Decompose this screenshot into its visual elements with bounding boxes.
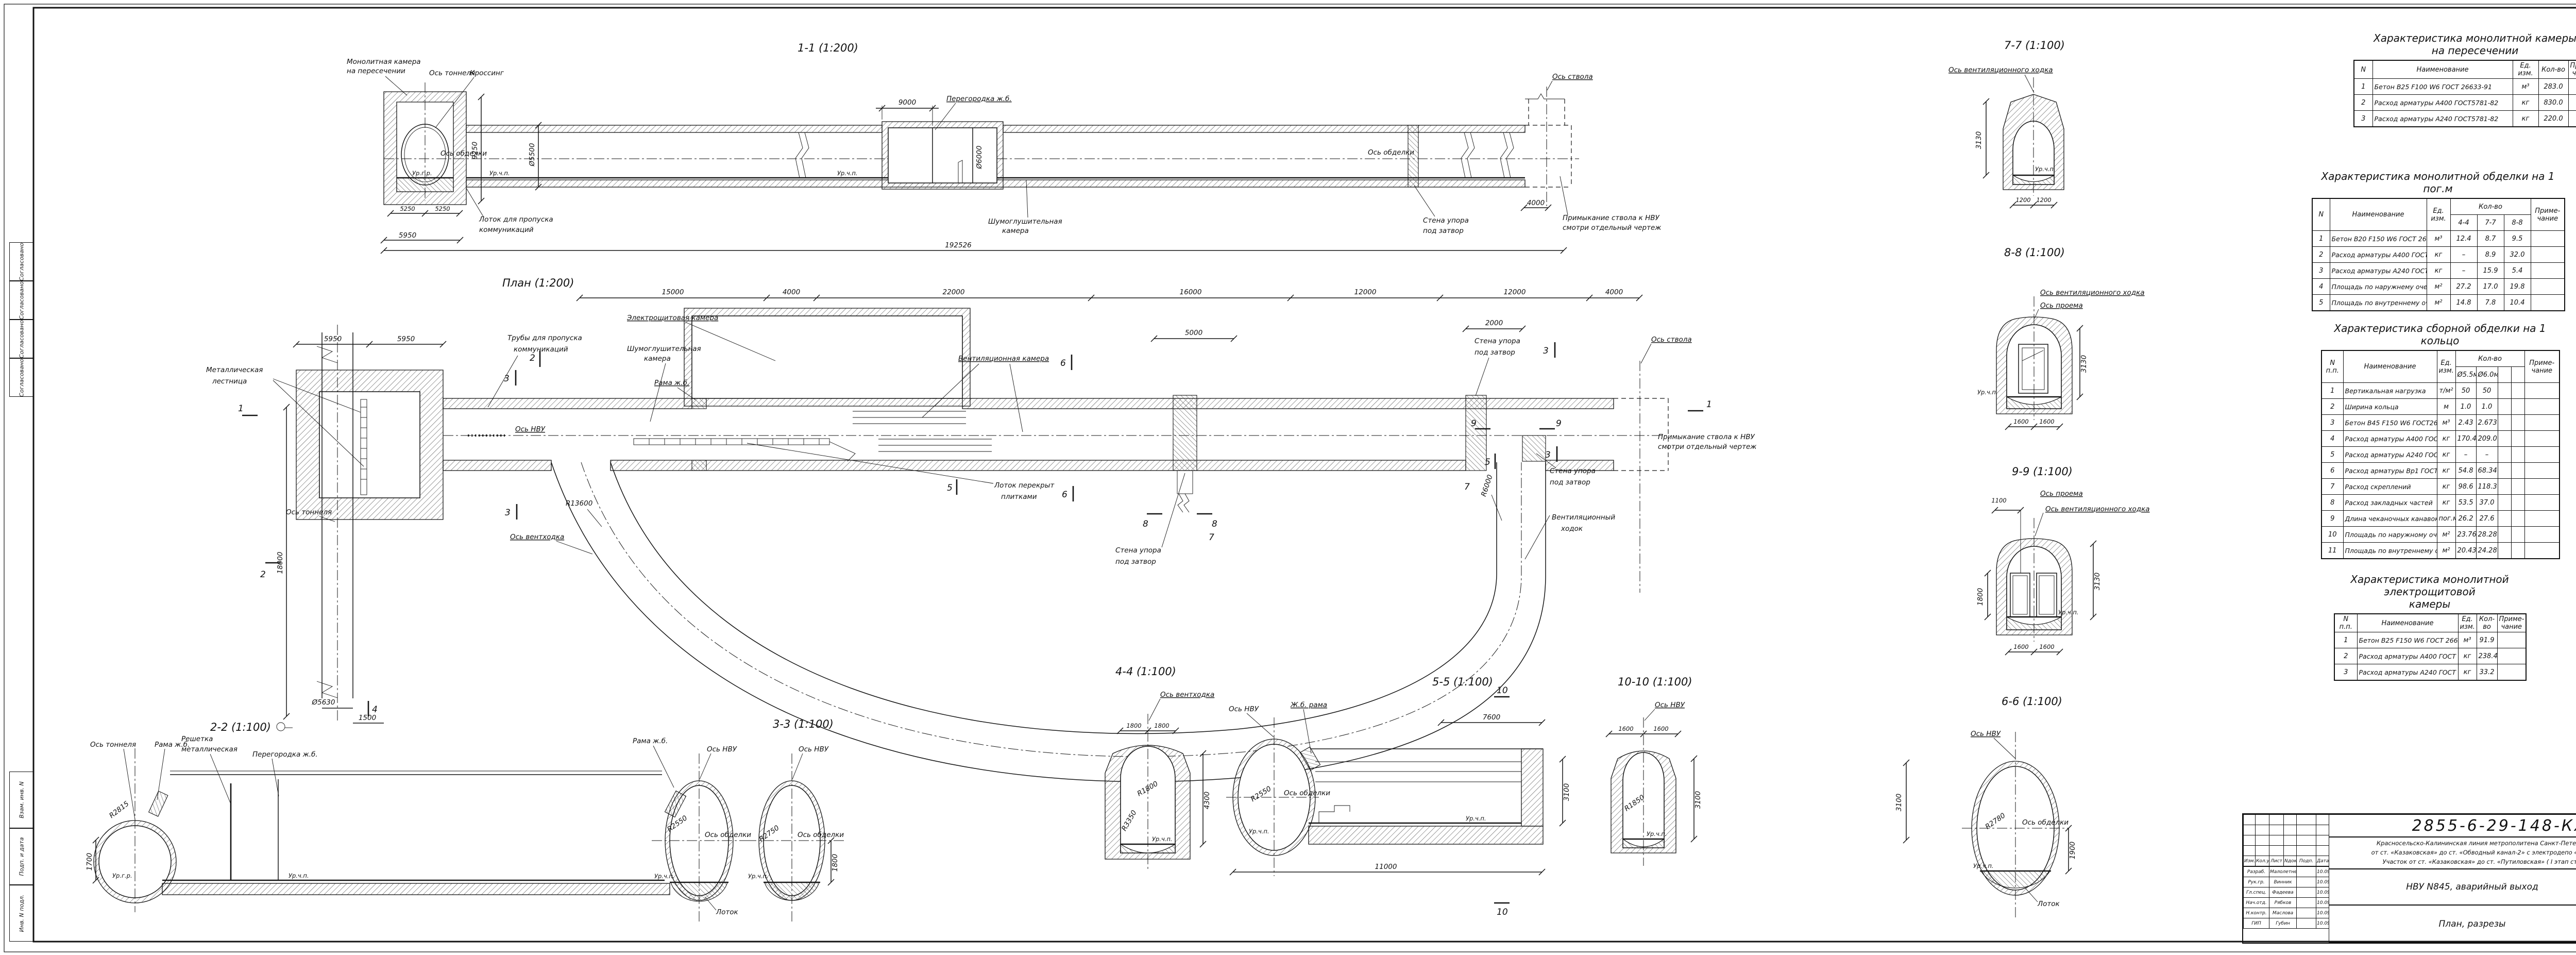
table-cell: 28.28 (2476, 527, 2498, 543)
table-cell: Вертикальная нагрузка (2343, 383, 2437, 399)
dim: 1200 (2036, 196, 2051, 204)
table-cell (2497, 664, 2526, 681)
table-cell (2511, 511, 2524, 527)
section-title: 9-9 (1:100) (2012, 465, 2073, 478)
table-cell: 4 (2312, 279, 2330, 295)
dim: 22000 (943, 288, 965, 296)
label-axis-lining: Ось обделки (1284, 789, 1330, 797)
table-cell (2498, 431, 2511, 447)
label-axis-tunnel: Ось тоннеля (429, 69, 475, 77)
dim: 16000 (1180, 288, 1202, 296)
label-urgr: Ур.г.р. (112, 872, 132, 879)
label-axis-nvu: Ось НВУ (799, 745, 829, 753)
table-cell: Рябков (2269, 898, 2297, 908)
table-cell: 1.0 (2476, 399, 2498, 415)
table-cell: 7 (2321, 479, 2343, 495)
drawing-sheet: 1-1 (1:200) Монолитная камера на пересеч… (0, 0, 2576, 955)
table-cell: 10.09.13 (2316, 898, 2329, 908)
label-partition: Перегородка ж.б. (946, 95, 1012, 103)
table-cell: Расход арматуры А400 ГОСТ 5781-82 (2357, 648, 2458, 664)
dim-3130: 3130 (2080, 355, 2088, 373)
dim-3100: 3100 (1694, 791, 1702, 809)
dim: 15000 (662, 288, 684, 296)
label-axis-vent: Ось вентиляционного ходка (1948, 66, 2053, 74)
table-cell: м³ (2458, 632, 2477, 648)
table-cell: кг (2437, 431, 2455, 447)
table-cell: м³ (2427, 231, 2450, 247)
table-cell: Ширина кольца (2343, 399, 2437, 415)
table-cell: Бетон В45 F150 W6 ГОСТ26633-91 (2343, 415, 2437, 431)
dim-1800: 1800 (831, 854, 839, 872)
table-cell: 5 (2312, 295, 2330, 311)
table-cell: м² (2437, 543, 2455, 559)
table-cell: Бетон В25 F150 W6 ГОСТ 26633-91 (2357, 632, 2458, 648)
table-cell: Бетон В20 F150 W6 ГОСТ 26633-91 (2330, 231, 2427, 247)
label-noise-chamber: камера (1002, 227, 1029, 235)
table-cell: 50 (2476, 383, 2498, 399)
dim-9250: 9250 (471, 142, 479, 159)
stamp-label: Инв. N подл. (18, 895, 25, 932)
table-cell: 12.4 (2450, 231, 2477, 247)
table-ring-lining: Характеристика сборной обделки на 1 коль… (2321, 322, 2559, 559)
table-cell: – (2450, 263, 2477, 279)
mark-5: 5 (1485, 457, 1490, 467)
table-row: Н.контр.Маслова10.09.13 (2244, 908, 2329, 918)
table-row: 1Бетон В20 F150 W6 ГОСТ 26633-91м³12.48.… (2312, 231, 2565, 247)
label-stop-wall: под затвор (1550, 478, 1590, 487)
table-cell (2568, 111, 2576, 127)
dim-1800: 1800 (1976, 588, 1985, 606)
table-cell: 17.0 (2477, 279, 2504, 295)
margin-stamp: Подп. и дата (9, 828, 33, 885)
table-cell (2524, 479, 2560, 495)
label-urchp: Ур.ч.п. (2035, 165, 2056, 173)
table-cell: Бетон В25 F100 W6 ГОСТ 26633-91 (2372, 79, 2513, 95)
table-cell: Расход арматуры А240 ГОСТ 5781-82 (2343, 447, 2437, 463)
mark-7: 7 (1464, 482, 1470, 492)
table-cell (2524, 415, 2560, 431)
mark-7: 7 (1209, 532, 1214, 543)
table-cell (2524, 543, 2560, 559)
table-cell: Винник (2269, 877, 2297, 887)
mark-1: 1 (238, 404, 244, 414)
table-cell: 19.8 (2504, 279, 2531, 295)
col-subheader (2498, 367, 2511, 383)
plan-title: План (1:200) (502, 277, 574, 289)
table-cell (2498, 511, 2511, 527)
table-row: Разраб.Малолетнева10.09.13 (2244, 867, 2329, 877)
label-rama: Рама ж.б. (633, 737, 668, 745)
table-cell: Губин (2269, 918, 2297, 929)
label-stop-wall: Стена упора (1475, 337, 1520, 345)
dim: 1600 (2013, 418, 2028, 425)
table-cell: 1.0 (2455, 399, 2476, 415)
label-lotok: Лоток (716, 908, 739, 916)
dim-1500: 1500 (359, 714, 376, 722)
table-cell (2498, 495, 2511, 511)
dim-2000: 2000 (1485, 319, 1503, 327)
label-axis-nvu: Ось НВУ (1229, 705, 1259, 713)
tb-col: Подп. (2297, 856, 2316, 866)
mark-10: 10 (1497, 907, 1508, 917)
table-cell: 3 (2354, 111, 2372, 127)
table-row: 1Вертикальная нагрузкат/м²5050 (2321, 383, 2560, 399)
mark-2: 2 (530, 353, 535, 363)
table-row: 9Длина чеканочных канавокпог.м26.227.6 (2321, 511, 2560, 527)
dim-5950: 5950 (399, 231, 416, 240)
col-subheader (2511, 367, 2524, 383)
table-cell: Расход арматуры А240 ГОСТ 5781-82 (2357, 664, 2458, 681)
table-cell: – (2450, 247, 2477, 263)
dim-3130: 3130 (1975, 131, 1983, 149)
table-cell: 32.0 (2504, 247, 2531, 263)
table-cell: Разраб. (2244, 867, 2269, 877)
section-title: 5-5 (1:100) (1432, 676, 1493, 688)
stamp-label: Согласовано (18, 243, 25, 281)
table-cell (2568, 79, 2576, 95)
table-cell: 91.9 (2477, 632, 2497, 648)
dim: 4000 (1605, 288, 1623, 296)
mark-8: 8 (1143, 519, 1148, 529)
table-cell: Расход скреплений (2343, 479, 2437, 495)
table-cell (2524, 511, 2560, 527)
label-elec-chamber: Электрощитовая камера (626, 314, 718, 322)
label-lotok-comm: Лоток для пропуска (479, 215, 553, 224)
table-cell: кг (2437, 463, 2455, 479)
stamp-label: Согласовано (18, 359, 25, 397)
label-stop-wall: Стена упора (1423, 216, 1469, 225)
table-cell: 220.0 (2538, 111, 2568, 127)
label-axis-tunnel: Ось тоннеля (90, 741, 136, 749)
label-urchp: Ур.ч.п. (1249, 828, 1269, 835)
table-cell: м³ (2513, 79, 2538, 95)
mark-3: 3 (505, 508, 511, 518)
label-urchp: Ур.ч.п. (289, 872, 309, 879)
table-cell: кг (2513, 95, 2538, 111)
table-cell: 50 (2455, 383, 2476, 399)
margin-stamp: Согласовано (9, 358, 33, 397)
table-cell: 68.34 (2476, 463, 2498, 479)
col-subheader: 7-7 (2477, 215, 2504, 231)
table-cell: 98.6 (2455, 479, 2476, 495)
table-cell: кг (2437, 447, 2455, 463)
table-cell: 54.8 (2455, 463, 2476, 479)
margin-stamp: Инв. N подл. (9, 885, 33, 942)
table-cell: 10.09.13 (2316, 918, 2329, 929)
table-cell: 209.0 (2476, 431, 2498, 447)
label-axis-tunnel: Ось тоннеля (286, 508, 332, 516)
dim-5630: Ø5630 (312, 698, 335, 707)
dim-5000: 5000 (1185, 329, 1202, 337)
table-cell: 8 (2321, 495, 2343, 511)
table-cell (2498, 383, 2511, 399)
dim: 12000 (1354, 288, 1377, 296)
dim: 1600 (1618, 725, 1633, 732)
table-cell (2498, 543, 2511, 559)
table-cell (2498, 527, 2511, 543)
table-cell: 1 (2321, 383, 2343, 399)
table-cell: 9 (2321, 511, 2343, 527)
mark-2: 2 (260, 569, 266, 580)
label-stop-wall: под затвор (1423, 227, 1464, 235)
dim: 12000 (1504, 288, 1526, 296)
label-noise-chamber: Шумоглушительная (988, 217, 1062, 226)
table-row: 2Ширина кольцам1.01.0 (2321, 399, 2560, 415)
table-cell: 10 (2321, 527, 2343, 543)
table-cell: м³ (2437, 415, 2455, 431)
table-cell (2511, 447, 2524, 463)
col-header: N (2354, 60, 2372, 79)
table-cell: Расход арматуры А240 ГОСТ5781-82 (2372, 111, 2513, 127)
table-cell: Расход арматуры А400 ГОСТ 5781-82 (2330, 247, 2427, 263)
table-row: 1Бетон В25 F100 W6 ГОСТ 26633-91м³283.0 (2354, 79, 2576, 95)
table-cell: м² (2427, 295, 2450, 311)
table-cell: 23.76 (2455, 527, 2476, 543)
table-cell: 2 (2354, 95, 2372, 111)
col-header: Кол-во (2450, 198, 2531, 215)
dim-r13600: R13600 (566, 499, 592, 508)
col-header: Ед. изм. (2427, 198, 2450, 231)
table-electro-chamber: Характеристика монолитной электрощитовой… (2334, 573, 2526, 681)
label-zhb-rama: Ж.б. рама (1290, 701, 1327, 709)
label-urchp: Ур.ч.п. (1152, 835, 1173, 843)
table-cell (2498, 415, 2511, 431)
section-1-1-title: 1-1 (1:200) (798, 42, 858, 54)
label-urchp: Ур.ч.п. (837, 170, 858, 177)
table-cell: Расход закладных частей (2343, 495, 2437, 511)
table-cell: 2.673 (2476, 415, 2498, 431)
mark-6: 6 (1062, 490, 1067, 500)
table-cell: 53.5 (2455, 495, 2476, 511)
margin-stamp: Согласовано (9, 281, 33, 320)
table-cell: кг (2458, 664, 2477, 681)
mark-1: 1 (1706, 399, 1712, 410)
table-row: 11Площадь по внутреннему очертаниюм²20.4… (2321, 543, 2560, 559)
table-cell (2497, 648, 2526, 664)
stamp-label: Взам. инв. N (18, 781, 25, 818)
table-cell (2524, 495, 2560, 511)
dim: 1200 (2015, 196, 2030, 204)
dim-3100: 3100 (1895, 794, 1903, 811)
desc-line: Красносельско-Калининская линия метропол… (2377, 839, 2576, 848)
label-urchp: Ур.ч.п. (1973, 862, 1994, 869)
tb-col: Nдок. (2284, 856, 2297, 866)
table-cell (2498, 463, 2511, 479)
dim-9000: 9000 (899, 98, 916, 107)
col-header: N п.п. (2334, 614, 2357, 632)
table-cell: 1 (2354, 79, 2372, 95)
table-cell: 37.0 (2476, 495, 2498, 511)
label-adjoin: Примыкание ствола к НВУ (1658, 433, 1755, 441)
table-cell (2297, 867, 2316, 877)
label-axis-nvu: Ось НВУ (707, 745, 737, 753)
col-subheader: Ø5.5м (2455, 367, 2476, 383)
label-urchp: Ур.ч.п. (1466, 815, 1486, 822)
table-cell: 9.5 (2504, 231, 2531, 247)
dim: 1800 (1154, 722, 1169, 729)
col-header: Приме- чание (2497, 614, 2526, 632)
col-header: Приме- чание (2524, 350, 2560, 383)
table-cell: 20.43 (2455, 543, 2476, 559)
label-chamber: Монолитная камера (347, 58, 421, 66)
section-title: 2-2 (1:100) (210, 721, 271, 733)
table-cell: 3 (2312, 263, 2330, 279)
table-cell: пог.м (2437, 511, 2455, 527)
table-cell: 7.8 (2477, 295, 2504, 311)
col-header: Кол-во (2455, 350, 2524, 367)
dim-5500: Ø5500 (528, 143, 536, 167)
table-cell (2531, 295, 2565, 311)
table-cell: Площадь по внутреннему очертанию (2330, 295, 2427, 311)
col-header: Приме- чание (2531, 198, 2565, 231)
col-header: Наименование (2372, 60, 2513, 79)
label-rama: Рама ж.б. (654, 379, 689, 387)
table-row: 4Площадь по наружнему очертаниюм²27.217.… (2312, 279, 2565, 295)
table-row: 3Бетон В45 F150 W6 ГОСТ26633-91м³2.432.6… (2321, 415, 2560, 431)
table-cell (2568, 95, 2576, 111)
table-cell: 27.6 (2476, 511, 2498, 527)
dim-3130: 3130 (2093, 573, 2102, 590)
table-cell: 4 (2321, 431, 2343, 447)
table-row: 6Расход арматуры Вр1 ГОСТ 6727-80кг54.86… (2321, 463, 2560, 479)
desc-line: Участок от ст. «Казаковская» до ст. «Пут… (2382, 858, 2576, 867)
table-cell (2297, 908, 2316, 918)
table-cell: 10.09.13 (2316, 877, 2329, 887)
table-cell: 14.8 (2450, 295, 2477, 311)
table-row: Нач.отд.Рябков10.09.13 (2244, 898, 2329, 908)
table-cell (2511, 463, 2524, 479)
table-cell: ГИП (2244, 918, 2269, 929)
label-axis-ventkhodka: Ось вентходка (510, 533, 564, 541)
label-urchp: Ур.ч.п. (1977, 389, 1998, 396)
col-subheader: 8-8 (2504, 215, 2531, 231)
table-cell: 238.4 (2477, 648, 2497, 664)
dim: 1600 (2039, 418, 2054, 425)
table-cell: 8.7 (2477, 231, 2504, 247)
table-row: Гл.спец.Фадеева10.09.13 (2244, 887, 2329, 898)
table-cell: 830.0 (2538, 95, 2568, 111)
table-cell: – (2455, 447, 2476, 463)
table-cell (2511, 399, 2524, 415)
label-adjoin: смотри отдельный чертеж (1563, 224, 1662, 232)
table-cell: 5 (2321, 447, 2343, 463)
col-header: Ед. изм. (2458, 614, 2477, 632)
label-vent-khodok: Вентиляционный (1552, 513, 1615, 522)
label-urchp: Ур.ч.п. (654, 873, 675, 880)
table-cell: Фадеева (2269, 887, 2297, 898)
section-title: 7-7 (1:100) (2004, 39, 2065, 52)
col-header: N п.п. (2321, 350, 2343, 383)
table-cell: Гл.спец. (2244, 887, 2269, 898)
table-cell: 10.09.13 (2316, 908, 2329, 918)
mark-3: 3 (1545, 450, 1551, 460)
table-cell: 1 (2334, 632, 2357, 648)
col-header: Приме- чание (2568, 60, 2576, 79)
dim: 4000 (783, 288, 800, 296)
dim-5250: 5250 (400, 205, 415, 212)
table-row: 4Расход арматуры А400 ГОСТ 5781-82кг170.… (2321, 431, 2560, 447)
label-vent-chamber: Вентиляционная камера (958, 355, 1049, 363)
mark-5: 5 (947, 483, 953, 493)
dim-4000: 4000 (1527, 199, 1545, 207)
table-cell: м (2437, 399, 2455, 415)
table-row: Рук.гр.Винник10.09.13 (2244, 877, 2329, 887)
label-pipes: коммуникаций (514, 345, 568, 354)
dim: 5950 (324, 335, 342, 343)
table-row: 3Расход арматуры А240 ГОСТ5781-82кг220.0 (2354, 111, 2576, 127)
table-cell (2524, 431, 2560, 447)
table-cell (2297, 877, 2316, 887)
table-cell (2531, 231, 2565, 247)
table-cell (2297, 918, 2316, 929)
table-cell: Длина чеканочных канавок (2343, 511, 2437, 527)
table-cell (2511, 479, 2524, 495)
dim-1700: 1700 (86, 853, 94, 870)
table-cell: – (2476, 447, 2498, 463)
label-urchp: Ур.ч.п. (748, 873, 769, 880)
table-cell: Расход арматуры А400 ГОСТ 5781-82 (2343, 431, 2437, 447)
label-axis-shaft: Ось ствола (1552, 73, 1593, 81)
table-cell: 3 (2334, 664, 2357, 681)
label-lotok-plity: Лоток перекрыт (994, 481, 1055, 490)
label-axis-lining: Ось обделки (440, 149, 487, 158)
dim: 1600 (2039, 643, 2054, 650)
mark-3: 3 (1543, 346, 1549, 356)
table-cell (2511, 431, 2524, 447)
table-cell (2511, 383, 2524, 399)
label-partition: Перегородка ж.б. (252, 750, 318, 759)
table-title: Характеристика сборной обделки на 1 коль… (2321, 322, 2559, 347)
table-title: Характеристика монолитной электрощитовой (2350, 573, 2509, 598)
label-lotok-comm: коммуникаций (479, 226, 534, 234)
section-title: 8-8 (1:100) (2004, 246, 2065, 259)
table-cell: 11 (2321, 543, 2343, 559)
doc-description: Красносельско-Калининская линия метропол… (2329, 837, 2576, 869)
label-noise-chamber: камера (644, 355, 671, 363)
col-header: Кол- во (2477, 614, 2497, 632)
table-row: 3Расход арматуры А240 ГОСТ 5781-82кг–15.… (2312, 263, 2565, 279)
table-row: 2Расход арматуры А400 ГОСТ5781-82кг830.0 (2354, 95, 2576, 111)
table-row: 5Расход арматуры А240 ГОСТ 5781-82кг–– (2321, 447, 2560, 463)
margin-stamp: Взам. инв. N (9, 772, 33, 828)
table-cell: м² (2427, 279, 2450, 295)
table-row: 3Расход арматуры А240 ГОСТ 5781-82кг33.2 (2334, 664, 2526, 681)
table-row: 2Расход арматуры А400 ГОСТ 5781-82кг–8.9… (2312, 247, 2565, 263)
table-cell: Рук.гр. (2244, 877, 2269, 887)
table-cell: Маслова (2269, 908, 2297, 918)
dim-1100: 1100 (1991, 497, 2006, 504)
label-axis-ventkhodka: Ось вентходка (1160, 691, 1214, 699)
section-title: 10-10 (1:100) (1618, 676, 1692, 688)
dim: 1600 (1653, 725, 1668, 732)
table-row: 1Бетон В25 F150 W6 ГОСТ 26633-91м³91.9 (2334, 632, 2526, 648)
tb-col: Кол.уч. (2256, 856, 2269, 866)
label-axis-opening: Ось проема (2040, 490, 2083, 498)
col-header: Наименование (2343, 350, 2437, 383)
table-row: 7Расход скрепленийкг98.6118.3 (2321, 479, 2560, 495)
table-cell (2498, 479, 2511, 495)
table-cell: 6 (2321, 463, 2343, 479)
table-cell (2498, 447, 2511, 463)
table-cell: 2 (2334, 648, 2357, 664)
label-axis-vent: Ось вентиляционного ходка (2040, 289, 2145, 297)
table-cell: Н.контр. (2244, 908, 2269, 918)
col-header: Ед. изм. (2437, 350, 2455, 383)
object-name: НВУ N845, аварийный выход (2329, 869, 2576, 905)
col-header: Ед. изм. (2513, 60, 2538, 79)
label-ladder: лестница (212, 377, 247, 386)
dim: 1800 (1126, 722, 1141, 729)
